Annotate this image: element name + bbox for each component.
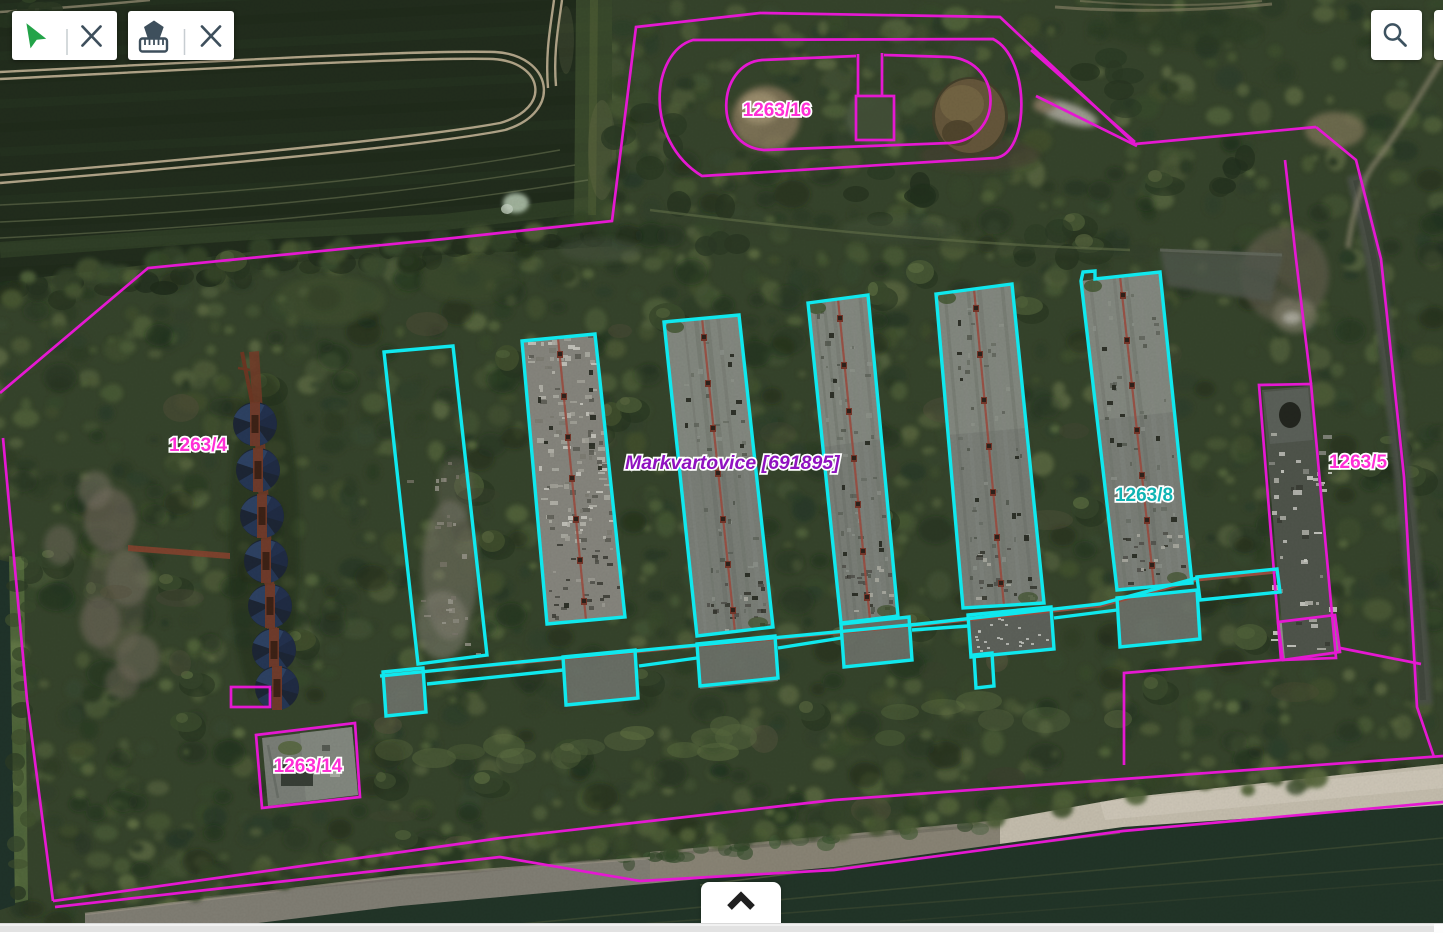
svg-text:1263/5: 1263/5	[1329, 452, 1388, 473]
svg-text:1263/16: 1263/16	[743, 100, 812, 121]
svg-text:1263/4: 1263/4	[169, 435, 228, 456]
svg-text:1263/14: 1263/14	[274, 756, 343, 777]
svg-text:1263/8: 1263/8	[1115, 485, 1173, 506]
svg-text:Markvartovice [691895]: Markvartovice [691895]	[625, 452, 841, 474]
